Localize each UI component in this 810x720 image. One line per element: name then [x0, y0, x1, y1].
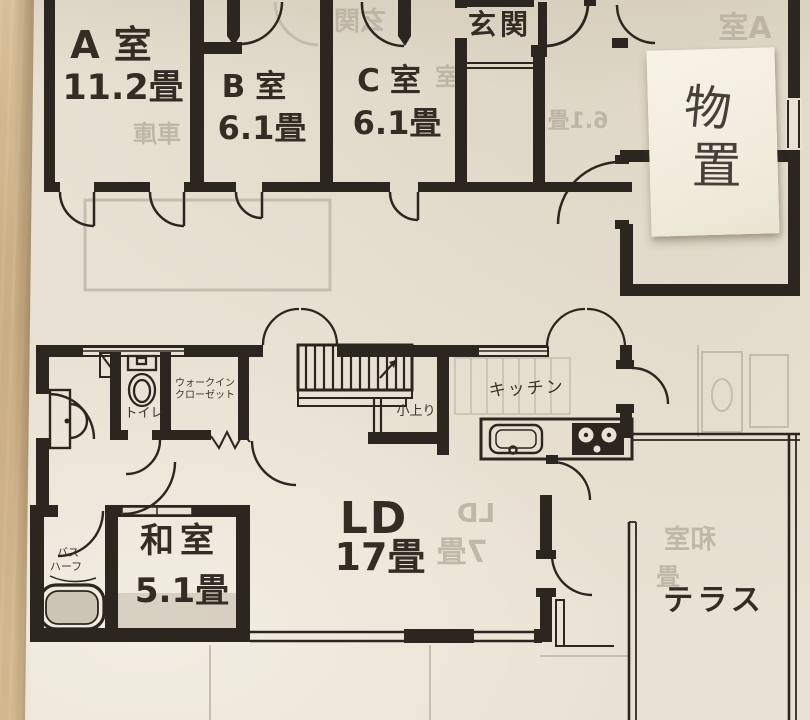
ghost-garage-label: 車庫	[133, 120, 181, 148]
sticky-note-char-top: 物	[682, 83, 733, 134]
storage-door-arc	[558, 162, 620, 224]
porch-step-lines	[556, 600, 614, 646]
ghost-garage-outline	[85, 200, 330, 290]
hallway-door-arcs	[60, 192, 418, 226]
sink-icon	[490, 425, 542, 454]
kitchen-label: キッチン	[488, 377, 565, 401]
corridor-door-icon	[612, 5, 655, 48]
toilet-icon	[128, 356, 156, 406]
terrace-label: テラス	[663, 583, 764, 618]
ld-size: 17畳	[335, 535, 426, 579]
ghost-guides	[210, 645, 628, 720]
entrance-step-lines	[460, 63, 540, 68]
room-b-door-icon	[227, 0, 282, 46]
bath-label-line1: バス	[57, 546, 79, 559]
sticky-note: 物 置	[646, 47, 779, 237]
koagari-step: 小上り	[368, 398, 449, 444]
ghost-washitsu-label: 和室	[664, 524, 716, 555]
kitchen-door-arc	[632, 368, 668, 404]
room-b-size: 6.1畳	[218, 109, 307, 147]
room-a-size: 11.2畳	[62, 68, 183, 108]
door-arc	[60, 192, 94, 226]
wic-label-line1: ウォークイン	[175, 377, 235, 389]
floor-plan-photo: A室 玄関 室 6.1畳 車庫 LD 7畳 和室 畳	[0, 0, 810, 720]
lower-floor-plan: トイレ ウォークイン クローゼット	[30, 309, 800, 720]
toilet-room: トイレ	[110, 352, 171, 474]
room-c-label: C室	[357, 63, 431, 99]
entrance-label: 玄関	[468, 8, 532, 41]
entrance-door-icon	[531, 2, 588, 57]
toilet-door-arc	[126, 440, 160, 474]
ghost-fixtures	[698, 345, 788, 437]
room-b-label: B室	[222, 69, 297, 105]
ghost-room-a-label: A室	[718, 11, 771, 46]
room-c-size: 6.1畳	[353, 104, 442, 142]
bathtub-icon	[40, 585, 104, 629]
double-door-icons	[263, 309, 625, 347]
ghost-ld-label: LD	[457, 499, 495, 529]
koagari-label: 小上り	[396, 404, 435, 419]
ghost-ld-size-label: 7畳	[437, 535, 488, 570]
ld-terrace-door-arc	[552, 555, 592, 595]
washitsu-size: 5.1畳	[135, 571, 229, 611]
washitsu-room: 和室 5.1畳	[105, 505, 250, 642]
toilet-label: トイレ	[124, 406, 163, 421]
door-arc	[150, 192, 184, 226]
kitchen-passage-door-arc	[552, 462, 590, 500]
bath-label-arrow	[50, 576, 96, 582]
sticky-note-char-bottom: 置	[691, 141, 741, 191]
walk-in-closet: ウォークイン クローゼット	[171, 352, 250, 448]
wic-label-line2: クローゼット	[175, 389, 235, 401]
stove-icon	[572, 423, 624, 455]
room-a-label: A室	[70, 23, 165, 67]
washitsu-label: 和室	[140, 521, 220, 561]
bath-label-line2: ハーフ	[50, 560, 82, 573]
ghost-size-label: 6.1畳	[548, 109, 609, 134]
terrace: テラス	[629, 434, 800, 720]
hall-door-arc	[252, 441, 296, 485]
living-dining-room: LD 17畳	[250, 455, 614, 646]
ghost-entrance-label: 玄関	[334, 6, 386, 37]
door-arc	[390, 192, 418, 220]
door-arc	[236, 192, 262, 218]
